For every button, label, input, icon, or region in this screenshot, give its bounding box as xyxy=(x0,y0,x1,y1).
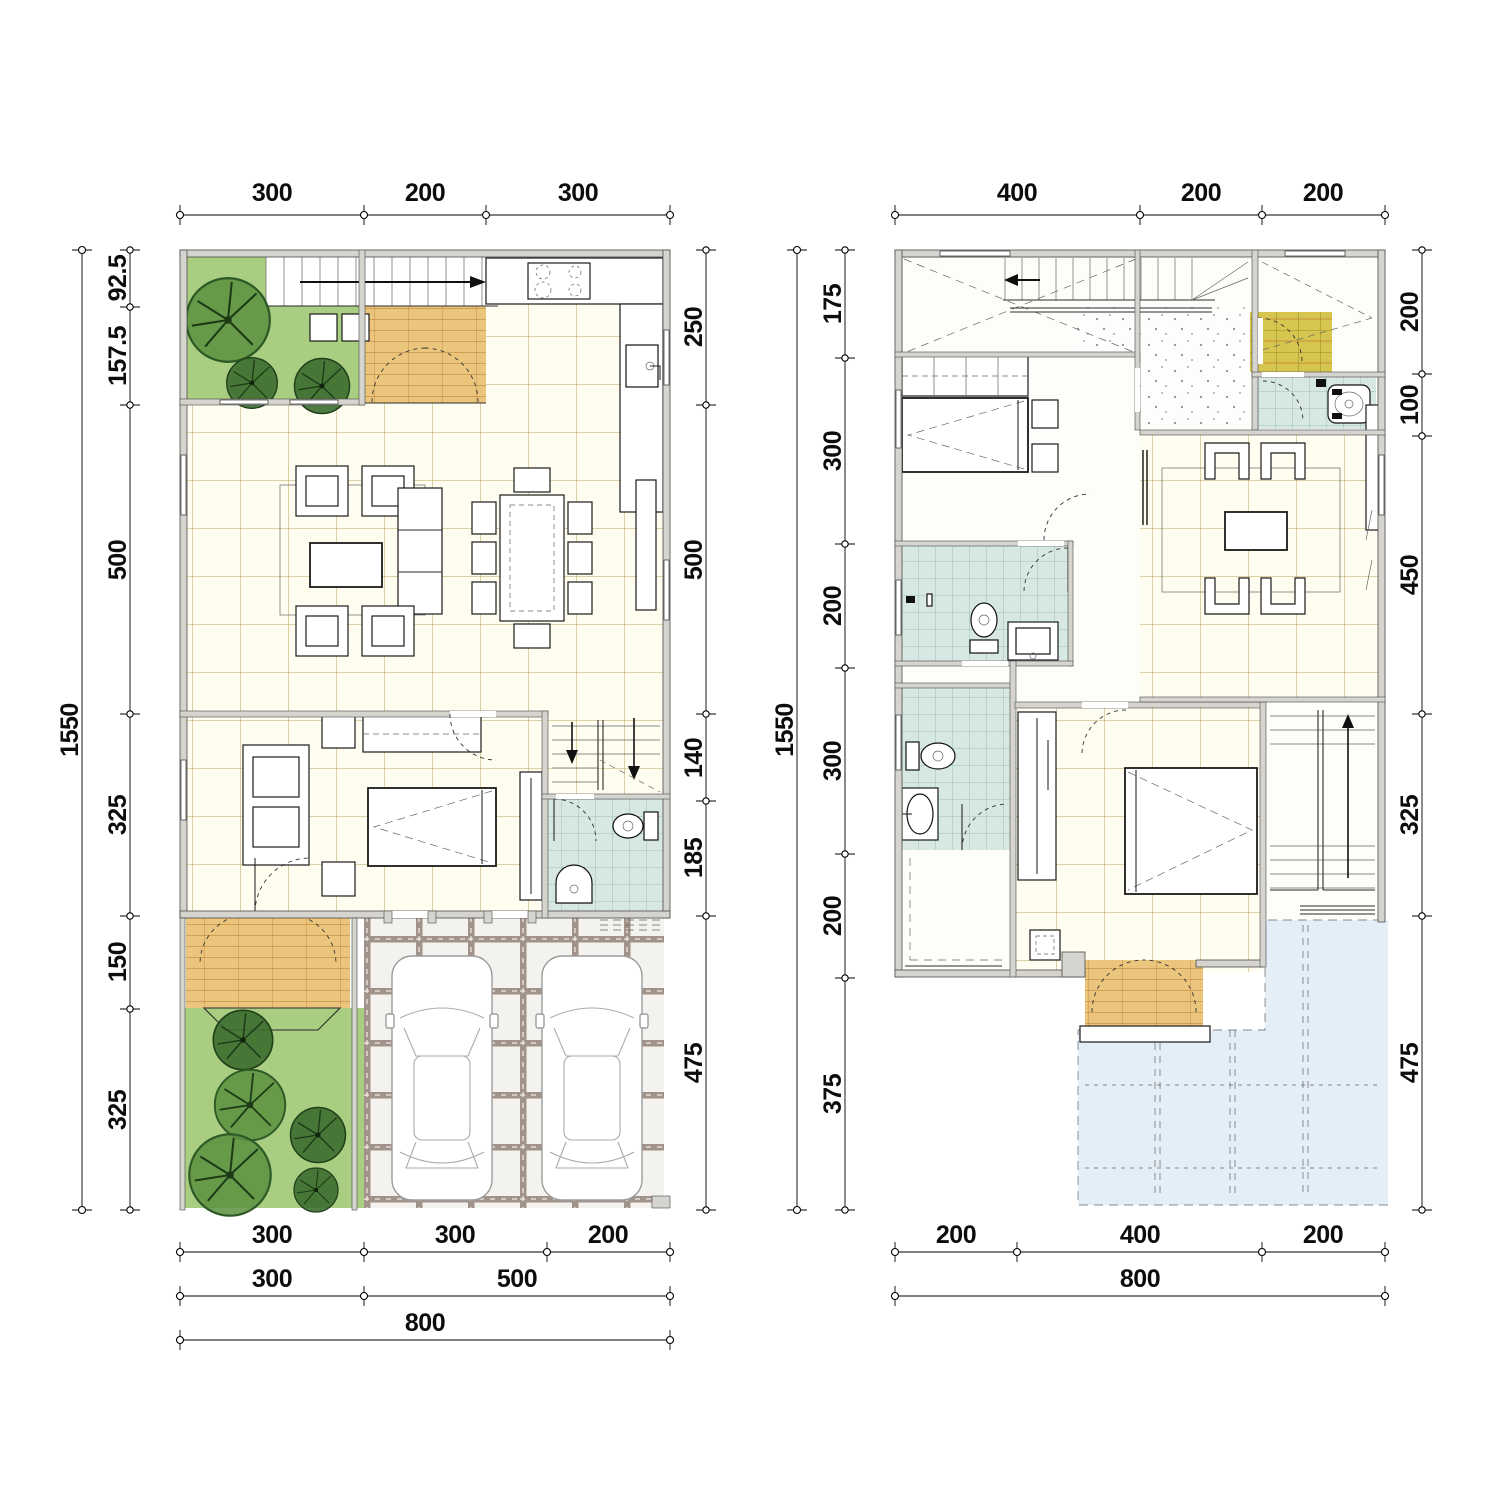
svg-text:325: 325 xyxy=(104,1089,132,1130)
bed-2 xyxy=(902,398,1028,472)
ground-dims-top: 300 200 300 xyxy=(177,179,674,225)
coffee-table xyxy=(310,543,382,587)
car-1 xyxy=(386,956,498,1200)
floor-plan-sheet: 300 200 300 1550 92.5 157.5 500 325 150 … xyxy=(0,0,1500,1500)
upper-dim-total: 1550 xyxy=(771,247,807,1214)
family-room-floor xyxy=(1140,430,1378,702)
planter-box xyxy=(310,314,337,341)
svg-text:200: 200 xyxy=(405,179,445,207)
svg-text:450: 450 xyxy=(1396,555,1424,595)
terrace-deck xyxy=(186,916,350,1008)
svg-text:300: 300 xyxy=(252,179,292,207)
dining-table xyxy=(500,495,564,621)
svg-text:500: 500 xyxy=(104,540,132,580)
svg-text:200: 200 xyxy=(588,1221,628,1249)
ground-dims-right: 250 500 140 185 475 xyxy=(680,247,716,1213)
svg-text:175: 175 xyxy=(819,283,847,324)
svg-text:800: 800 xyxy=(1120,1265,1160,1293)
svg-text:200: 200 xyxy=(1181,179,1221,207)
svg-text:200: 200 xyxy=(1303,1221,1343,1249)
tv-cabinet xyxy=(1030,930,1060,960)
family-table xyxy=(1225,512,1287,550)
svg-text:300: 300 xyxy=(435,1221,475,1249)
svg-text:150: 150 xyxy=(104,942,132,982)
ground-dims-left: 92.5 157.5 500 325 150 325 xyxy=(104,247,140,1213)
svg-text:185: 185 xyxy=(680,837,708,878)
svg-text:200: 200 xyxy=(819,586,847,626)
svg-text:300: 300 xyxy=(558,179,598,207)
bathtub xyxy=(1328,385,1370,423)
toilet-1 xyxy=(970,603,998,653)
ground-dims-bottom: 300 300 200 300 500 800 xyxy=(177,1221,674,1350)
svg-text:300: 300 xyxy=(819,431,847,471)
svg-text:800: 800 xyxy=(405,1309,445,1337)
svg-text:1550: 1550 xyxy=(771,703,799,757)
plan-drawing: 300 200 300 1550 92.5 157.5 500 325 150 … xyxy=(0,0,1500,1500)
svg-text:200: 200 xyxy=(819,896,847,936)
ground-dim-total: 1550 xyxy=(56,247,92,1214)
upper-dims-top: 400 200 200 xyxy=(892,179,1389,225)
svg-text:375: 375 xyxy=(819,1073,847,1114)
toilet-2 xyxy=(906,742,955,770)
master-bed xyxy=(1125,768,1257,894)
svg-text:400: 400 xyxy=(1120,1221,1160,1249)
svg-text:300: 300 xyxy=(252,1221,292,1249)
svg-text:140: 140 xyxy=(680,738,708,778)
bedroom-balcony-deck xyxy=(1085,960,1203,1026)
svg-text:325: 325 xyxy=(104,794,132,835)
bed xyxy=(368,788,496,866)
ground-floor-plan xyxy=(180,250,670,1216)
svg-text:500: 500 xyxy=(680,540,708,580)
svg-text:300: 300 xyxy=(252,1265,292,1293)
svg-text:325: 325 xyxy=(1396,794,1424,835)
upper-dims-left: 175 300 200 300 200 375 xyxy=(819,247,855,1213)
svg-text:475: 475 xyxy=(680,1042,708,1083)
svg-text:100: 100 xyxy=(1396,385,1424,425)
svg-text:157.5: 157.5 xyxy=(104,325,132,386)
entry-deck xyxy=(364,306,486,403)
wash-basin xyxy=(556,865,592,903)
svg-text:475: 475 xyxy=(1396,1042,1424,1083)
toilet xyxy=(613,812,658,840)
upper-dims-bottom: 200 400 200 800 xyxy=(892,1221,1389,1306)
svg-text:300: 300 xyxy=(819,741,847,781)
svg-text:400: 400 xyxy=(997,179,1037,207)
car-2 xyxy=(536,956,648,1200)
svg-text:200: 200 xyxy=(1396,292,1424,332)
svg-text:250: 250 xyxy=(680,307,708,347)
svg-text:92.5: 92.5 xyxy=(104,254,132,301)
upper-floor-plan xyxy=(895,250,1388,1205)
svg-text:500: 500 xyxy=(497,1265,537,1293)
sofa xyxy=(398,488,442,614)
svg-text:200: 200 xyxy=(1303,179,1343,207)
svg-text:200: 200 xyxy=(936,1221,976,1249)
upper-dims-right: 200 100 450 325 475 xyxy=(1396,247,1432,1213)
svg-text:1550: 1550 xyxy=(56,703,84,757)
console-cabinet xyxy=(636,480,656,610)
